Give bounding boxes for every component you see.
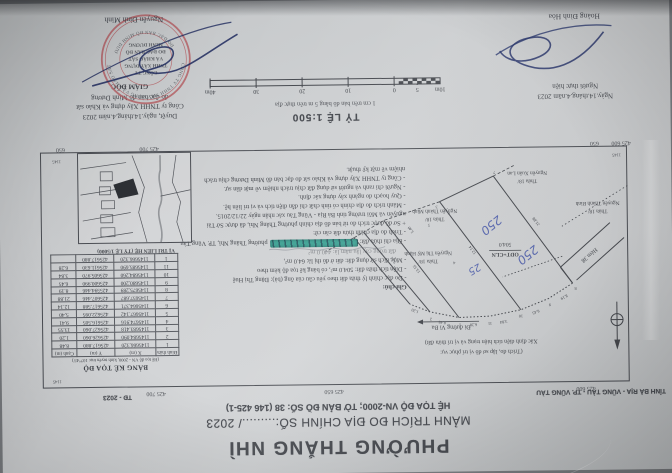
coord-row: 71145657.687425607.44621.88 (51, 293, 178, 302)
vertex-label: 1 (459, 322, 461, 327)
coord-cell: 3 (155, 324, 178, 332)
coord-row: 81145675.289425594.4468.19 (51, 285, 178, 294)
td-code: TĐ - 2023 (103, 394, 132, 401)
executor-date: Ngày.14.tháng.4.năm 2023 (495, 91, 655, 101)
coord-cell: 11 (155, 262, 178, 270)
neighbor-name: Nguyễn Thị Mỹ Hạnh (404, 250, 452, 258)
road-arrow-icon (417, 319, 423, 324)
col-header: Cạnh (m) (52, 349, 77, 358)
approval-date: Duyệt, ngày.14.tháng.4.năm 2023 (37, 111, 222, 121)
inset-sketch (80, 155, 191, 243)
coord-cell: 1145657.687 (115, 293, 156, 301)
coord-row: 21145684.090425626.0601.20 (52, 332, 179, 341)
grid-label: 425 700 (146, 390, 166, 396)
edge-label: 6.45 (532, 309, 541, 316)
coord-cell (51, 255, 76, 263)
grid-label: 650 (590, 140, 599, 146)
coord-cell: 7 (155, 293, 178, 301)
edge-label: 6.28 (470, 322, 478, 327)
coord-cell: 6 (155, 301, 178, 309)
coord-cell: 3.84 (51, 271, 76, 279)
coord-cell: 1145683.418 (115, 324, 156, 332)
neighbor-name: Nguyễn Thành Bình (575, 200, 619, 208)
approval-signature (69, 14, 250, 98)
neighbor-plot: Thửa 18/ (424, 216, 444, 222)
coord-cell: 425600.990 (76, 278, 114, 286)
coord-cell: 425622.095 (76, 309, 114, 317)
notes-block: Ghi chú: - Đo đạc chỉnh lý thửa đất theo… (161, 164, 407, 294)
coord-cell: 425607.446 (76, 294, 114, 302)
grid-label: 425 600 (611, 139, 631, 145)
coordinate-table-body: 11145666.320425617.8808.4821145684.09042… (51, 254, 179, 349)
scale-label: 5 (416, 86, 419, 92)
subject-parcel-mark (113, 178, 138, 198)
coord-cell: 1145664.371 (115, 301, 156, 309)
coord-row: 51145667.142425622.0955.40 (51, 308, 178, 317)
scale-title: TỶ LỆ 1:500 (225, 110, 425, 123)
grid-label: 650 (56, 146, 65, 152)
road-label: Đi đường Vi Ba (431, 323, 471, 330)
coord-cell: 9 (155, 277, 178, 285)
neighbor-name: Nguyễn Thành Minh (412, 208, 458, 216)
province-line: TỈNH BÀ RỊA - VŨNG TÀU - TP. VŨNG TÀU (536, 387, 666, 396)
neighbor-plot: Thửa 18/ (517, 178, 537, 184)
col-header: X (m) (115, 348, 156, 357)
coord-cell: 1145685.690 (114, 262, 155, 270)
page-title: PHƯỜNG THẮNG NHÌ (2, 431, 672, 461)
scale-label: 0 (393, 86, 396, 92)
coordinate-table-block: BẢNG KÊ TỌA ĐỘ (Hệ tọa độ VN - 2000, kin… (48, 253, 181, 372)
alley-label: Hẻm 38 (580, 246, 598, 263)
coord-cell: 12.14 (51, 302, 76, 310)
coord-cell: 1145666.320 (115, 340, 156, 348)
coord-cell: 425611.630 (76, 262, 114, 270)
coord-cell: 1145680.200 (114, 277, 155, 285)
vertex-label: 8 (575, 286, 577, 291)
coord-cell: 1 (155, 254, 178, 262)
edge-label: 8.19 (560, 293, 569, 301)
coord-cell: 6.28 (51, 263, 76, 271)
parcel-use-code: ODT+CLN (492, 251, 519, 257)
handwritten-number: 250 (478, 213, 505, 238)
col-header: Đỉnh thửa (156, 347, 179, 356)
coord-cell: 1145674.916 (115, 316, 156, 324)
coord-cell: 1 (156, 340, 179, 348)
edge-label: 3.84 (499, 319, 508, 325)
coord-cell: 425605.970 (76, 270, 114, 278)
vertex-label: 9 (549, 302, 551, 307)
notes-lines: - Đo đạc chỉnh lý thửa đất theo yêu cầu … (161, 164, 406, 285)
coord-cell: 425626.060 (77, 333, 115, 341)
coord-cell: 1145684.090 (115, 332, 156, 340)
coord-cell: 425617.880 (76, 255, 114, 263)
coord-cell: 1145684.260 (114, 270, 155, 278)
coord-cell: 21.88 (51, 294, 76, 302)
scale-label: 10 (345, 87, 351, 93)
coord-cell: 425617.588 (76, 301, 114, 309)
coord-cell: 425627.060 (77, 325, 115, 333)
cadastral-document: PHƯỜNG THẮNG NHÌ MẢNH TRÍCH ĐO ĐỊA CHÍNH… (0, 0, 672, 473)
coord-cell: 10 (155, 269, 178, 277)
pencil-scribble (267, 242, 387, 255)
vertex-label: 7 (493, 170, 495, 175)
coord-cell: 9.41 (51, 317, 76, 325)
coord-cell: 425594.446 (76, 286, 114, 294)
vertex-label: 2 (430, 317, 432, 322)
grid-label: 425 600 (576, 385, 596, 391)
coord-cell: 1.20 (52, 333, 77, 341)
edge-label: 21.88 (531, 216, 541, 227)
handwritten-number: 25 (466, 261, 483, 277)
coord-row: 101145684.260425605.9703.84 (51, 269, 178, 278)
edge-label: 1.20 (411, 307, 420, 314)
coord-row: 61145664.371425617.58812.14 (51, 301, 178, 310)
coord-row: 11145666.320425617.880 (51, 254, 178, 263)
edge-label: 5.40 (406, 226, 414, 235)
vertex-label: 11 (488, 321, 492, 326)
map-annotation-line2: Xác định diện tích hiện trạng và vị trí … (425, 338, 538, 346)
coord-row: 41145674.916425616.5059.41 (51, 316, 178, 325)
coord-row: 11145666.320425617.8808.48 (52, 340, 179, 349)
scale-label: 30 (253, 88, 259, 94)
handwritten-number: 250 (514, 242, 541, 267)
scanned-photo: PHƯỜNG THẮNG NHÌ MẢNH TRÍCH ĐO ĐỊA CHÍNH… (0, 0, 672, 473)
grid-label: 425 650 (324, 388, 344, 394)
edge-label: 13.55 (412, 264, 422, 275)
coord-cell: 1145675.289 (114, 285, 155, 293)
coord-row: 111145685.690425611.6306.28 (51, 262, 178, 271)
coord-cell: 5 (155, 308, 178, 316)
coord-cell: 8.48 (52, 341, 77, 349)
vertex-label: 10 (519, 314, 523, 319)
vertex-label: 6 (448, 211, 450, 216)
vertex-label: 4 (452, 261, 455, 266)
coord-cell: 8.19 (51, 286, 76, 294)
coord-row: 91145680.200425600.9906.45 (51, 277, 178, 286)
executor-name: Hoàng Đình Hòa (494, 11, 654, 22)
coord-cell: 1145666.320 (114, 254, 155, 262)
table-title: BẢNG KÊ TỌA ĐỘ (50, 363, 182, 373)
col-header: Y (m) (77, 348, 115, 357)
parcel-area: 504.0 (499, 241, 512, 247)
scale-label: 10m (435, 86, 446, 92)
scale-note: 1 cm trên bản đồ bằng 5 m trên thực địa (215, 99, 435, 109)
map-annotation-line1: (Trích đo, lập sơ đồ vị trí phục vụ: (440, 348, 523, 356)
coord-cell: 425617.880 (77, 340, 115, 348)
coordinate-table: Đỉnh thửa X (m) Y (m) Cạnh (m) 11145666.… (50, 253, 179, 358)
coord-cell: 2 (156, 332, 179, 340)
neighbor-plot: Thửa 18/ (418, 258, 438, 264)
neighbor-name: Nguyễn Xuân Lan (507, 169, 547, 176)
vertex-label: 3 (436, 205, 438, 210)
coord-cell: 8 (155, 285, 178, 293)
coord-cell: 6.45 (51, 278, 76, 286)
north-arrow-icon (611, 302, 624, 350)
coord-cell: 13.55 (52, 325, 77, 333)
coord-row: 31145683.418425627.06013.55 (52, 324, 179, 333)
coord-cell: 1145667.142 (115, 309, 156, 317)
location-inset-map (77, 152, 192, 244)
neighbor-plot: Thửa 18/ (587, 208, 607, 214)
vertex-label: 5 (428, 223, 430, 228)
coord-cell: 4 (155, 316, 178, 324)
edge-label: 8.48 (438, 320, 446, 326)
coord-cell: 425616.505 (76, 317, 114, 325)
scale-label: 20 (299, 87, 305, 93)
coord-cell: 5.40 (51, 310, 76, 318)
executor-signature (479, 21, 630, 85)
